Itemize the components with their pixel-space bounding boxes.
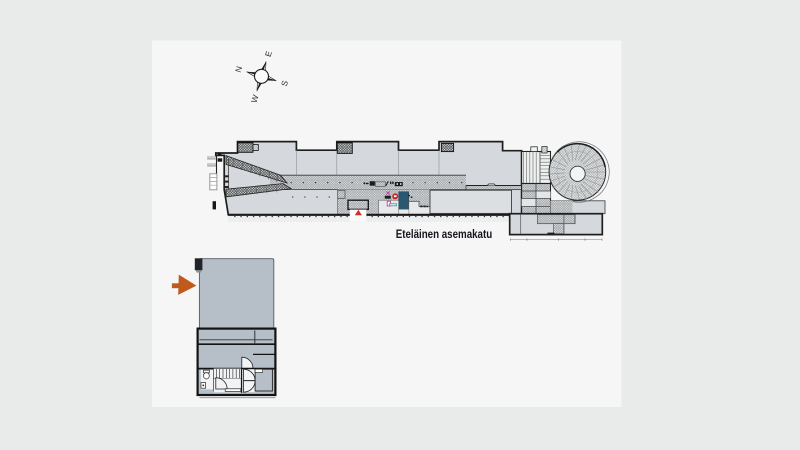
svg-text:Eteläinen asemakatu: Eteläinen asemakatu (396, 227, 493, 241)
